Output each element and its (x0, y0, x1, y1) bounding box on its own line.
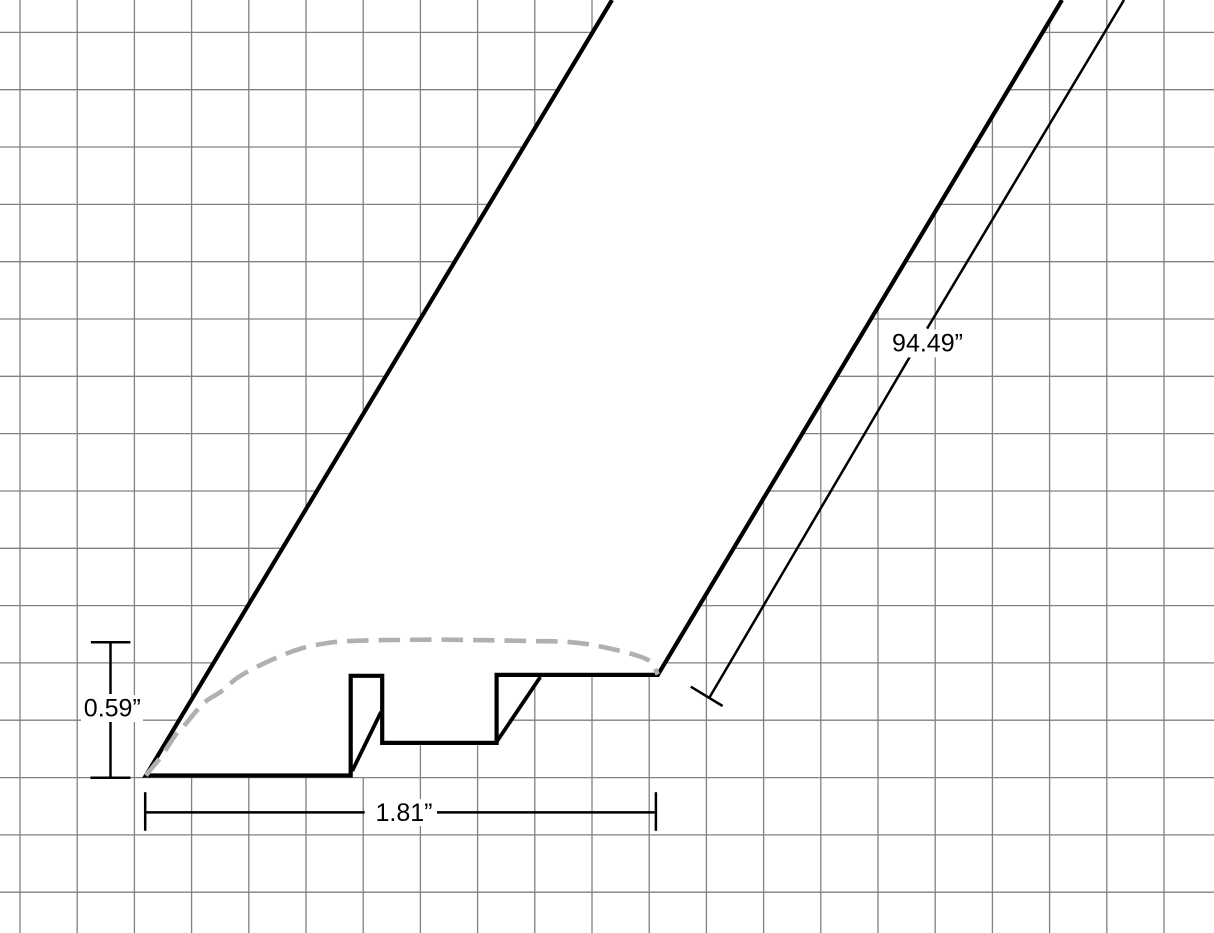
svg-text:94.49”: 94.49” (892, 330, 963, 358)
svg-text:0.59”: 0.59” (84, 695, 141, 723)
svg-text:1.81”: 1.81” (376, 799, 433, 827)
